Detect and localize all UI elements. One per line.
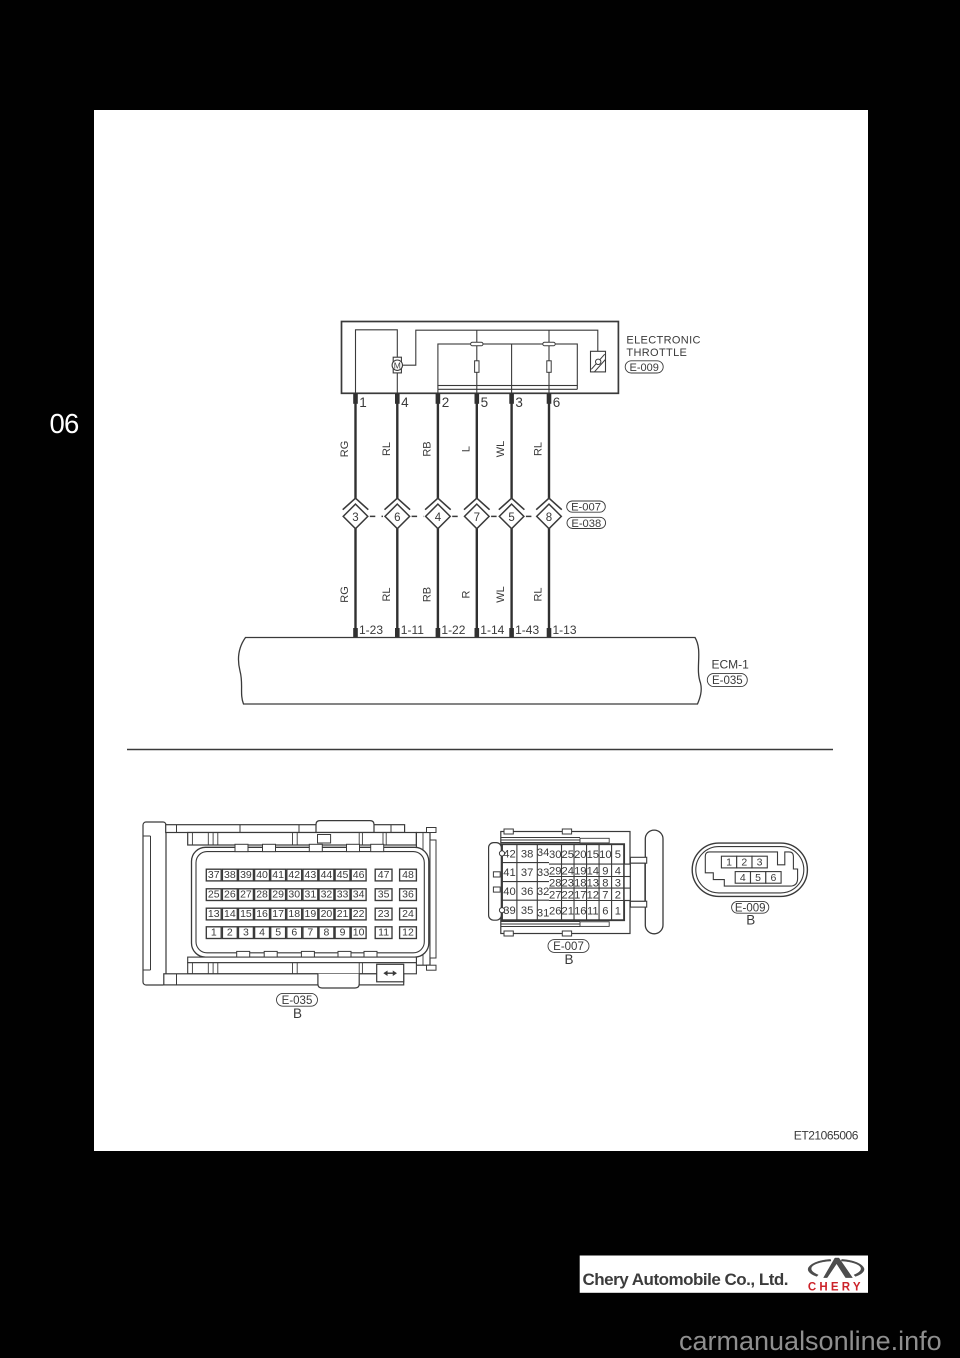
svg-text:9: 9 — [602, 865, 608, 877]
svg-text:E-007: E-007 — [571, 502, 601, 514]
svg-text:1-23: 1-23 — [359, 623, 383, 637]
svg-text:E-009: E-009 — [630, 362, 659, 374]
svg-text:5: 5 — [508, 512, 514, 524]
svg-text:16: 16 — [574, 905, 586, 917]
svg-text:32: 32 — [537, 886, 549, 898]
svg-text:20: 20 — [574, 849, 586, 861]
svg-text:ECM-1: ECM-1 — [712, 658, 750, 672]
svg-text:44: 44 — [321, 869, 333, 881]
svg-text:31: 31 — [537, 908, 549, 920]
svg-text:1-14: 1-14 — [480, 623, 504, 637]
svg-text:20: 20 — [321, 908, 333, 920]
svg-text:18: 18 — [574, 877, 586, 889]
svg-text:33: 33 — [537, 867, 549, 879]
svg-text:4: 4 — [435, 512, 442, 524]
svg-text:3: 3 — [757, 857, 763, 869]
svg-text:RB: RB — [421, 441, 433, 456]
svg-text:26: 26 — [549, 905, 561, 917]
svg-text:38: 38 — [224, 869, 236, 881]
svg-text:2: 2 — [741, 857, 747, 869]
svg-text:CHERY: CHERY — [808, 1282, 864, 1294]
svg-text:45: 45 — [337, 869, 349, 881]
svg-text:14: 14 — [224, 908, 236, 920]
svg-text:29: 29 — [272, 889, 284, 901]
svg-text:1: 1 — [726, 857, 732, 869]
svg-text:15: 15 — [587, 849, 599, 861]
svg-text:19: 19 — [305, 908, 317, 920]
svg-text:5: 5 — [755, 872, 761, 884]
svg-text:30: 30 — [549, 849, 561, 861]
svg-text:8: 8 — [602, 877, 608, 889]
svg-text:3: 3 — [243, 927, 249, 939]
svg-text:38: 38 — [521, 848, 533, 860]
svg-text:15: 15 — [240, 908, 252, 920]
svg-text:40: 40 — [256, 869, 268, 881]
svg-text:6: 6 — [770, 872, 776, 884]
svg-text:4: 4 — [740, 872, 746, 884]
svg-text:14: 14 — [587, 865, 599, 877]
svg-text:RL: RL — [533, 442, 545, 456]
svg-text:16: 16 — [256, 908, 268, 920]
svg-text:36: 36 — [521, 886, 533, 898]
svg-text:23: 23 — [562, 877, 574, 889]
svg-text:1-22: 1-22 — [441, 623, 465, 637]
svg-text:4: 4 — [615, 865, 621, 877]
svg-text:3: 3 — [515, 395, 523, 410]
svg-text:carmanualsonline.info: carmanualsonline.info — [679, 1326, 942, 1356]
svg-text:R: R — [460, 590, 472, 598]
svg-text:21: 21 — [337, 908, 349, 920]
svg-text:29: 29 — [549, 865, 561, 877]
svg-text:4: 4 — [259, 927, 265, 939]
svg-text:M: M — [394, 361, 401, 371]
svg-text:B: B — [564, 952, 573, 967]
svg-text:37: 37 — [208, 869, 220, 881]
svg-text:RB: RB — [421, 587, 433, 602]
svg-text:1-11: 1-11 — [401, 623, 424, 637]
svg-text:2: 2 — [442, 395, 450, 410]
svg-text:1: 1 — [615, 905, 621, 917]
svg-text:18: 18 — [288, 908, 300, 920]
svg-text:3: 3 — [615, 877, 621, 889]
svg-text:B: B — [293, 1006, 302, 1021]
svg-text:12: 12 — [402, 927, 414, 939]
svg-text:RL: RL — [381, 442, 393, 456]
svg-text:37: 37 — [521, 867, 533, 879]
svg-text:17: 17 — [272, 908, 284, 920]
svg-text:28: 28 — [256, 889, 268, 901]
svg-text:34: 34 — [353, 889, 365, 901]
svg-text:4: 4 — [401, 395, 409, 410]
svg-text:B: B — [746, 913, 755, 928]
svg-text:2: 2 — [615, 889, 621, 901]
svg-text:1-43: 1-43 — [515, 623, 539, 637]
svg-text:ET21065006: ET21065006 — [794, 1129, 859, 1143]
svg-text:5: 5 — [275, 927, 281, 939]
svg-text:1-13: 1-13 — [553, 623, 577, 637]
svg-text:36: 36 — [402, 889, 414, 901]
svg-text:22: 22 — [353, 908, 365, 920]
svg-text:32: 32 — [321, 889, 333, 901]
svg-text:1: 1 — [211, 927, 217, 939]
svg-text:24: 24 — [562, 865, 574, 877]
svg-text:47: 47 — [378, 869, 390, 881]
svg-text:41: 41 — [503, 867, 515, 879]
svg-text:8: 8 — [546, 512, 552, 524]
svg-text:6: 6 — [553, 395, 561, 410]
svg-text:31: 31 — [305, 889, 317, 901]
svg-text:21: 21 — [562, 905, 574, 917]
svg-text:48: 48 — [402, 869, 414, 881]
svg-text:RL: RL — [533, 587, 545, 601]
svg-text:THROTTLE: THROTTLE — [626, 347, 687, 359]
svg-text:25: 25 — [562, 849, 574, 861]
svg-text:5: 5 — [615, 849, 621, 861]
svg-text:17: 17 — [574, 889, 586, 901]
svg-text:35: 35 — [378, 889, 390, 901]
svg-text:RG: RG — [339, 441, 351, 458]
svg-text:43: 43 — [305, 869, 317, 881]
svg-text:7: 7 — [307, 927, 313, 939]
svg-text:23: 23 — [378, 908, 390, 920]
svg-text:35: 35 — [521, 905, 533, 917]
svg-text:9: 9 — [340, 927, 346, 939]
svg-text:34: 34 — [537, 847, 549, 859]
svg-text:10: 10 — [353, 927, 365, 939]
svg-text:7: 7 — [474, 512, 480, 524]
svg-text:22: 22 — [562, 889, 574, 901]
svg-text:13: 13 — [208, 908, 220, 920]
svg-text:6: 6 — [394, 512, 400, 524]
svg-text:7: 7 — [602, 889, 608, 901]
svg-text:27: 27 — [549, 889, 561, 901]
svg-text:12: 12 — [587, 889, 599, 901]
svg-text:6: 6 — [291, 927, 297, 939]
svg-text:5: 5 — [481, 395, 489, 410]
svg-text:2: 2 — [227, 927, 233, 939]
svg-text:WL: WL — [495, 586, 507, 603]
svg-text:10: 10 — [599, 849, 611, 861]
svg-text:33: 33 — [337, 889, 349, 901]
svg-text:11: 11 — [378, 927, 389, 939]
svg-text:27: 27 — [240, 889, 252, 901]
svg-text:3: 3 — [352, 512, 358, 524]
svg-text:39: 39 — [503, 905, 515, 917]
svg-text:46: 46 — [353, 869, 365, 881]
svg-text:RG: RG — [339, 586, 351, 603]
svg-text:13: 13 — [587, 877, 599, 889]
svg-text:ELECTRONIC: ELECTRONIC — [626, 335, 700, 347]
svg-text:24: 24 — [402, 908, 414, 920]
svg-text:42: 42 — [288, 869, 300, 881]
svg-text:E-035: E-035 — [712, 675, 743, 687]
svg-text:E-038: E-038 — [571, 518, 601, 530]
svg-text:6: 6 — [602, 905, 608, 917]
svg-text:40: 40 — [503, 886, 515, 898]
svg-text:Chery Automobile Co., Ltd.: Chery Automobile Co., Ltd. — [583, 1270, 788, 1289]
svg-text:30: 30 — [288, 889, 300, 901]
svg-text:L: L — [460, 446, 472, 452]
svg-text:42: 42 — [503, 848, 515, 860]
svg-text:WL: WL — [495, 441, 507, 458]
svg-text:RL: RL — [381, 587, 393, 601]
svg-text:8: 8 — [324, 927, 330, 939]
svg-text:1: 1 — [359, 395, 367, 410]
svg-text:11: 11 — [587, 905, 599, 917]
svg-text:28: 28 — [549, 877, 561, 889]
svg-text:19: 19 — [574, 865, 586, 877]
svg-text:25: 25 — [208, 889, 220, 901]
svg-text:06: 06 — [50, 408, 79, 439]
svg-text:39: 39 — [240, 869, 252, 881]
svg-text:41: 41 — [272, 869, 284, 881]
svg-text:26: 26 — [224, 889, 236, 901]
